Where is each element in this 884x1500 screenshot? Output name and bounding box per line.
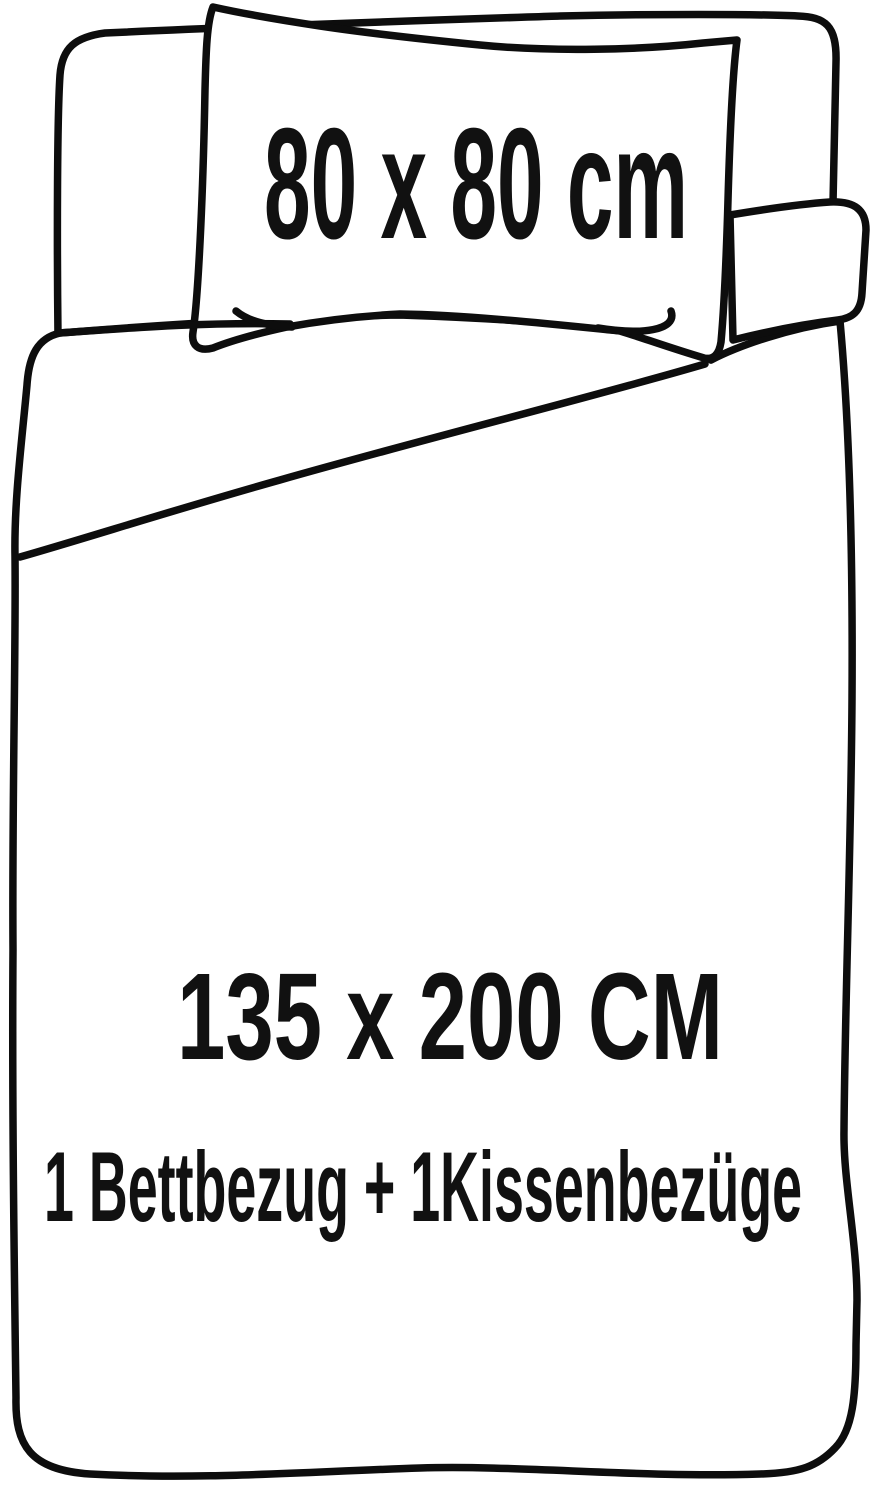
bedding-line-drawing: 80 x 80 cm 135 x 200 CM 1 Bettbezug + 1K…	[0, 0, 884, 1500]
set-contents-label: 1 Bettbezug + 1Kissenbezüge	[44, 1131, 802, 1242]
pillow-size-label: 80 x 80 cm	[264, 96, 688, 272]
duvet-shape	[13, 315, 857, 1476]
bedding-diagram-canvas: 80 x 80 cm 135 x 200 CM 1 Bettbezug + 1K…	[0, 0, 884, 1500]
duvet-size-label: 135 x 200 CM	[177, 949, 723, 1086]
side-roll-shape	[730, 202, 866, 340]
